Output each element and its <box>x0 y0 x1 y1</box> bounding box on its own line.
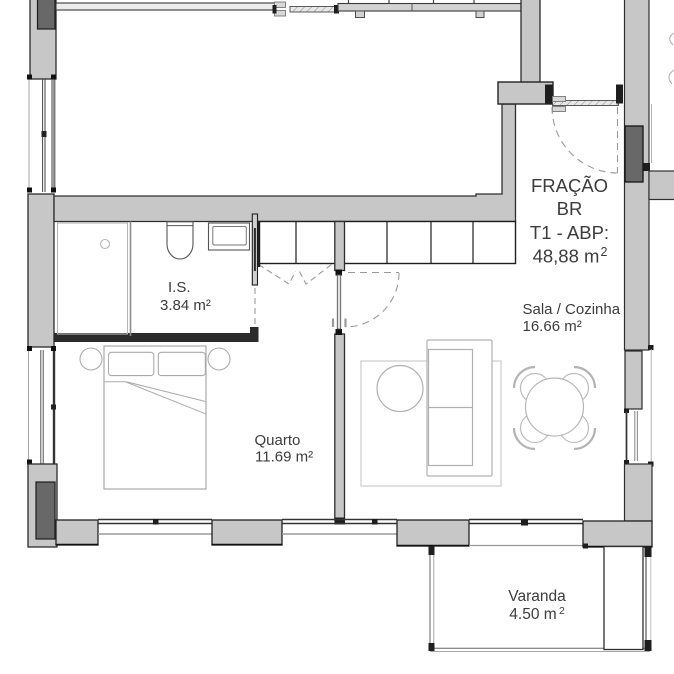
svg-text:BR: BR <box>557 198 583 219</box>
svg-text:11.69 m²: 11.69 m² <box>255 449 313 466</box>
svg-text:Quarto: Quarto <box>255 432 301 449</box>
svg-text:2: 2 <box>601 245 608 259</box>
svg-text:16.66 m²: 16.66 m² <box>523 318 582 335</box>
svg-text:I.S.: I.S. <box>168 279 191 296</box>
svg-text:2: 2 <box>559 605 565 617</box>
svg-text:Varanda: Varanda <box>508 588 566 605</box>
svg-text:48,88 m: 48,88 m <box>533 246 600 267</box>
svg-text:Sala / Cozinha: Sala / Cozinha <box>523 301 621 318</box>
svg-text:FRAÇÃO: FRAÇÃO <box>531 175 608 196</box>
svg-text:3.84 m²: 3.84 m² <box>160 297 211 314</box>
svg-text:T1 - ABP:: T1 - ABP: <box>530 222 609 243</box>
svg-text:4.50 m: 4.50 m <box>509 606 556 623</box>
